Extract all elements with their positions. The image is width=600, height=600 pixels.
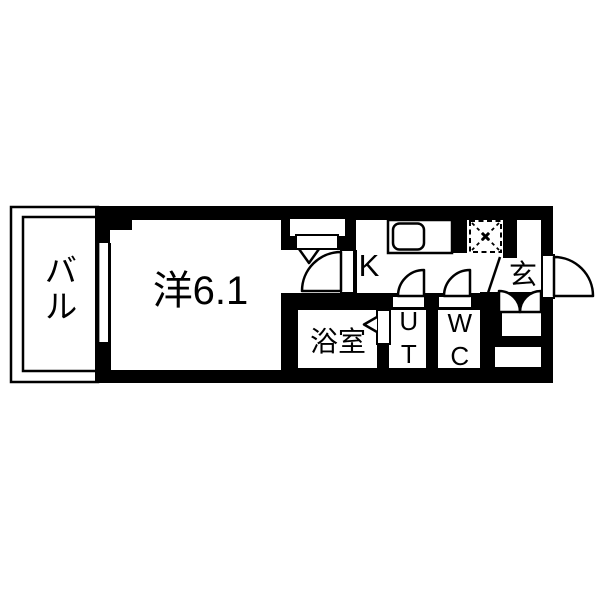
- kitchen-sink: [393, 224, 424, 250]
- room-door-arc: [302, 252, 341, 291]
- wall-entrance-left: [503, 220, 517, 258]
- niche-shelf-upper: [290, 219, 345, 236]
- kitchen-label: K: [352, 250, 386, 282]
- wall-right-upper: [541, 206, 553, 255]
- entrance-door-arc: [554, 257, 593, 296]
- toilet-door-leaf: [438, 296, 472, 308]
- window-line-right: [108, 243, 111, 342]
- shoe-cabinet-upper: [502, 313, 541, 336]
- wall-top-left-step2: [95, 230, 110, 243]
- window-line-left: [95, 243, 98, 342]
- wall-counter-right: [452, 220, 467, 253]
- niche-shelf-lower: [296, 235, 338, 249]
- main-room-label: 洋6.1: [118, 267, 283, 315]
- bathroom-door-slot: [377, 310, 390, 344]
- toilet-label: WC: [443, 309, 476, 373]
- toilet-door-arc: [444, 270, 470, 296]
- wall-ut-wc: [426, 295, 438, 372]
- wall-top-left-step: [95, 220, 132, 230]
- utility-door-arc: [398, 270, 424, 296]
- wall-top: [95, 206, 553, 220]
- floorplan: バル 洋6.1 K 浴室 UT WC 玄: [0, 0, 600, 600]
- bathroom-label: 浴室: [299, 326, 377, 358]
- wall-left-lower: [95, 342, 111, 372]
- utility-label: UT: [392, 307, 425, 371]
- shoe-cabinet-lower: [495, 347, 541, 367]
- entrance-label: 玄: [506, 258, 540, 292]
- entrance-door-leaf: [542, 255, 554, 298]
- dashed-equipment-box: [470, 221, 501, 252]
- floorplan-drawing: [0, 0, 600, 600]
- balcony-label: バル: [38, 246, 78, 332]
- entrance-step-line: [488, 257, 500, 293]
